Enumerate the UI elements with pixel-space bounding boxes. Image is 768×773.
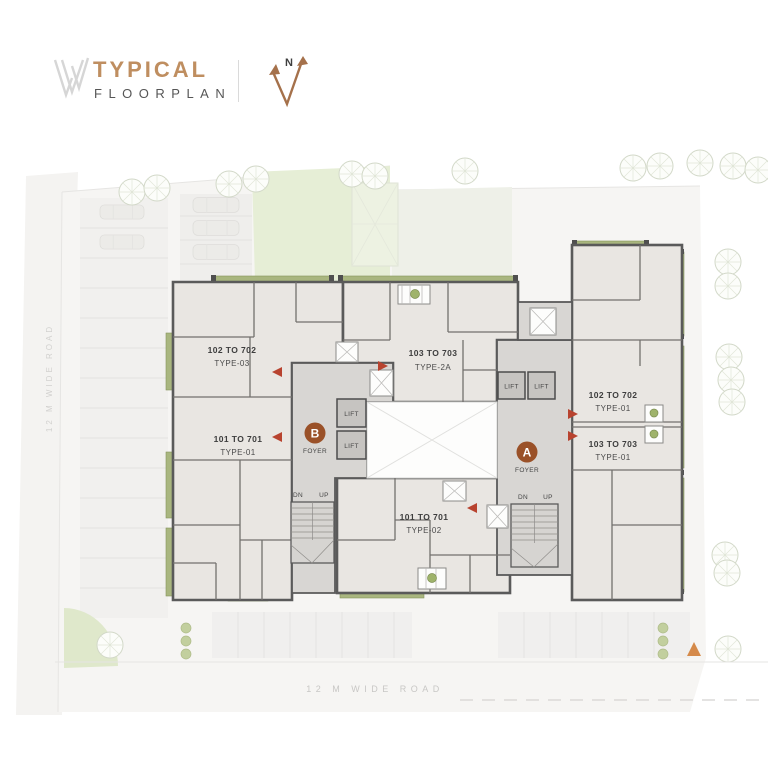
duct-shaft [336,342,358,362]
road-bottom-label: 12 M WIDE ROAD [306,684,444,694]
tree-icon [620,155,646,181]
gazebo-outline [352,183,398,266]
tree-icon [339,161,365,187]
duct-shaft [530,308,556,335]
tree-icon [144,175,170,201]
floorplan-page: 12 M WIDE ROAD 12 M WIDE ROAD [0,0,768,773]
tree-icon [745,157,768,183]
page-title: TYPICAL [93,57,208,83]
tree-icon [715,636,741,662]
building-layer: LIFT LIFT LIFT LIFT DN UP DN [166,240,684,601]
tree-icon [647,153,673,179]
unit-label-range: 101 TO 701 [400,512,449,522]
unit-label-type: TYPE-2A [415,363,451,372]
foyer-a-label: FOYER [515,467,539,474]
kitchen-fixture [418,568,446,589]
tree-icon [216,171,242,197]
stairs-up-label: UP [319,492,329,499]
stairs-up-label: UP [543,494,553,501]
header-divider [238,60,239,102]
tree-icon [715,249,741,275]
tree-icon [362,163,388,189]
unit-label-range: 103 TO 703 [409,348,458,358]
foyer-a-badge-letter: A [523,446,532,460]
stairs-b: DN UP [291,492,334,563]
foyer-a: A FOYER [515,442,539,475]
kitchen-fixture [398,285,430,304]
duct-shaft [370,370,393,396]
lift-label: LIFT [344,411,359,418]
bush-row-right [658,623,668,659]
tree-icon [719,389,745,415]
tree-icon [720,153,746,179]
unit-label-range: 101 TO 701 [214,434,263,444]
tree-icon [714,560,740,586]
pale-court [392,187,512,280]
unit-label-type: TYPE-01 [220,448,255,457]
stairs-dn-label: DN [293,492,303,499]
unit-label-type: TYPE-02 [406,526,441,535]
lift-label: LIFT [534,384,549,391]
foyer-b-label: FOYER [303,448,327,455]
tree-icon [715,273,741,299]
tree-icon [716,344,742,370]
bush-row-left [181,623,191,659]
unit-label-range: 103 TO 703 [589,439,638,449]
parking-left [80,198,168,618]
header: TYPICAL FLOORPLAN [0,0,768,130]
tree-icon [452,158,478,184]
unit-label-range: 102 TO 702 [208,345,257,355]
tree-icon [119,179,145,205]
duct-shaft [443,481,466,501]
tree-icon [687,150,713,176]
foyer-b-badge-letter: B [311,427,320,441]
courtyard [367,402,497,478]
lift-label: LIFT [504,384,519,391]
page-subtitle: FLOORPLAN [94,86,231,101]
lift-label: LIFT [344,443,359,450]
unit-label-type: TYPE-03 [214,359,249,368]
foyer-b: B FOYER [303,423,327,456]
unit-label-range: 102 TO 702 [589,390,638,400]
unit-label-type: TYPE-01 [595,404,630,413]
tree-icon [243,166,269,192]
stairs-dn-label: DN [518,494,528,501]
unit-label-type: TYPE-01 [595,453,630,462]
parking-bottom-left [212,612,412,658]
tree-icon [97,632,123,658]
road-left-label: 12 M WIDE ROAD [45,324,54,432]
